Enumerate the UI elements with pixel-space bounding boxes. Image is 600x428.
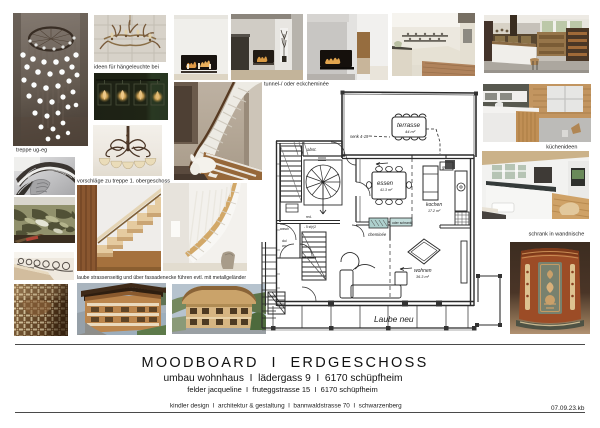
svg-text:kochen: kochen (426, 202, 442, 208)
svg-text:essen: essen (377, 181, 394, 187)
svg-text:41.3 m²: 41.3 m² (380, 188, 393, 192)
svg-text:wohnen: wohnen (414, 268, 432, 274)
svg-text:senk 4-19: senk 4-19 (350, 134, 369, 139)
svg-text:oder schrank: oder schrank (392, 221, 412, 225)
svg-text:wc: wc (282, 244, 287, 248)
svg-text:wasch: wasch (280, 227, 289, 231)
svg-text:cheminée: cheminée (368, 232, 387, 237)
svg-text:terrasse: terrasse (397, 122, 421, 129)
svg-text:abst.: abst. (307, 147, 317, 152)
svg-text:17.2 m²: 17.2 m² (428, 209, 441, 213)
svg-text:red.: red. (306, 215, 312, 219)
svg-text:- 5 st(r)2: - 5 st(r)2 (304, 225, 316, 229)
svg-text:44 m²: 44 m² (405, 129, 416, 134)
svg-text:36.3 m²: 36.3 m² (416, 275, 430, 279)
svg-text:du/: du/ (282, 239, 287, 243)
svg-text:Laube neu: Laube neu (374, 314, 414, 324)
